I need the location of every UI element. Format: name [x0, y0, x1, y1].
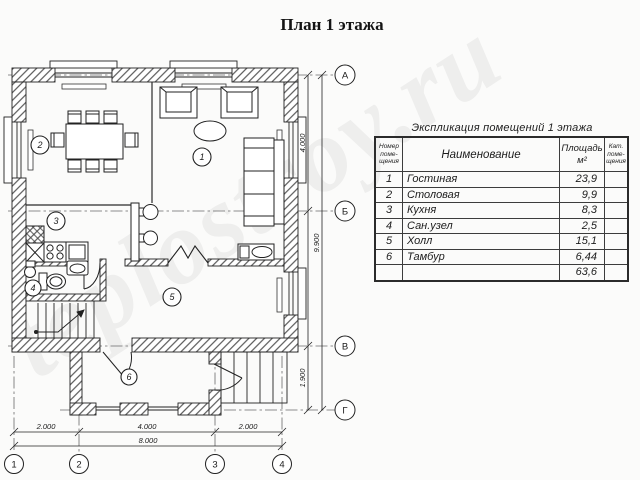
- cell-total-area: 63,6: [560, 265, 605, 281]
- cell-num: 4: [375, 218, 403, 234]
- opening-break-symbol: [168, 246, 208, 263]
- cell-name-empty: [403, 265, 560, 281]
- header-area: Площадь м²: [560, 137, 605, 172]
- dim-total-right: 9.900: [312, 233, 321, 253]
- cell-name: Холл: [403, 234, 560, 250]
- room-number-6: 6: [126, 372, 131, 382]
- dim-2-3: 4.000: [138, 422, 158, 431]
- dining-table-and-chairs: [51, 111, 138, 172]
- kitchen-counter: [26, 226, 88, 262]
- cell-num: 2: [375, 187, 403, 203]
- cell-name: Тамбур: [403, 249, 560, 265]
- stairs: [34, 301, 94, 338]
- axis-4: 4: [279, 460, 284, 471]
- axis-bubbles-right: [335, 65, 355, 420]
- cell-cat: [605, 187, 629, 203]
- cell-cat: [605, 234, 629, 250]
- axis-bubble-labels-bottom: 1 2 3 4: [11, 460, 284, 471]
- table-row: 1 Гостиная 23,9: [375, 172, 628, 188]
- table-row: 4 Сан.узел 2,5: [375, 218, 628, 234]
- axis-bubble-labels-right: А Б В Г: [342, 71, 349, 417]
- doors: [84, 263, 242, 390]
- header-room-number: Номер поме- щения: [375, 137, 403, 172]
- axis-bubbles-bottom: [5, 455, 292, 474]
- table-row: 3 Кухня 8,3: [375, 203, 628, 219]
- cell-num: 1: [375, 172, 403, 188]
- total-row: 63,6: [375, 265, 628, 281]
- room-number-3: 3: [53, 216, 58, 226]
- axis-3: 3: [212, 460, 217, 471]
- axis-a: А: [342, 71, 349, 82]
- chimney-stove-block: [131, 203, 158, 261]
- cell-cat-empty: [605, 265, 629, 281]
- cell-area: 2,5: [560, 218, 605, 234]
- cell-area: 8,3: [560, 203, 605, 219]
- cell-cat: [605, 172, 629, 188]
- dim-total-bottom: 8.000: [139, 436, 159, 445]
- table-row: 6 Тамбур 6,44: [375, 249, 628, 265]
- cell-num-empty: [375, 265, 403, 281]
- header-room-name: Наименование: [403, 137, 560, 172]
- cell-cat: [605, 218, 629, 234]
- dim-v-g: 1.900: [298, 368, 307, 388]
- cell-name: Кухня: [403, 203, 560, 219]
- axis-2: 2: [76, 460, 81, 471]
- table-row: 5 Холл 15,1: [375, 234, 628, 250]
- cell-num: 5: [375, 234, 403, 250]
- dimension-labels-bottom: 2.000 4.000 2.000 8.000: [36, 422, 259, 445]
- cell-cat: [605, 203, 629, 219]
- explication-title: Экспликация помещений 1 этажа: [374, 122, 630, 134]
- scanned-floor-plan-page: teplostroy.ru План 1 этажа: [0, 0, 640, 480]
- cell-area: 6,44: [560, 249, 605, 265]
- cell-area: 15,1: [560, 234, 605, 250]
- axis-b: Б: [342, 207, 348, 218]
- room-number-2: 2: [36, 140, 42, 150]
- dim-a-b: 4.000: [298, 133, 307, 153]
- header-category: Кат. поме- щения: [605, 137, 629, 172]
- cell-name: Сан.узел: [403, 218, 560, 234]
- cell-name: Гостиная: [403, 172, 560, 188]
- porch-steps: [221, 352, 287, 403]
- explication-table: Номер поме- щения Наименование Площадь м…: [374, 136, 629, 282]
- cell-num: 6: [375, 249, 403, 265]
- room-number-4: 4: [30, 283, 35, 293]
- cell-cat: [605, 249, 629, 265]
- cell-area: 9,9: [560, 187, 605, 203]
- explication-block: Экспликация помещений 1 этажа Номер поме…: [374, 122, 630, 282]
- dim-1-2: 2.000: [36, 422, 57, 431]
- cell-area: 23,9: [560, 172, 605, 188]
- cell-num: 3: [375, 203, 403, 219]
- axis-1: 1: [11, 460, 16, 471]
- cell-name: Столовая: [403, 187, 560, 203]
- dim-3-4: 2.000: [238, 422, 259, 431]
- table-row: 2 Столовая 9,9: [375, 187, 628, 203]
- axis-g: Г: [342, 406, 347, 417]
- room-number-1: 1: [199, 152, 204, 162]
- header-row: Номер поме- щения Наименование Площадь м…: [375, 137, 628, 172]
- axis-v: В: [342, 342, 348, 353]
- living-room-furniture: [160, 87, 284, 260]
